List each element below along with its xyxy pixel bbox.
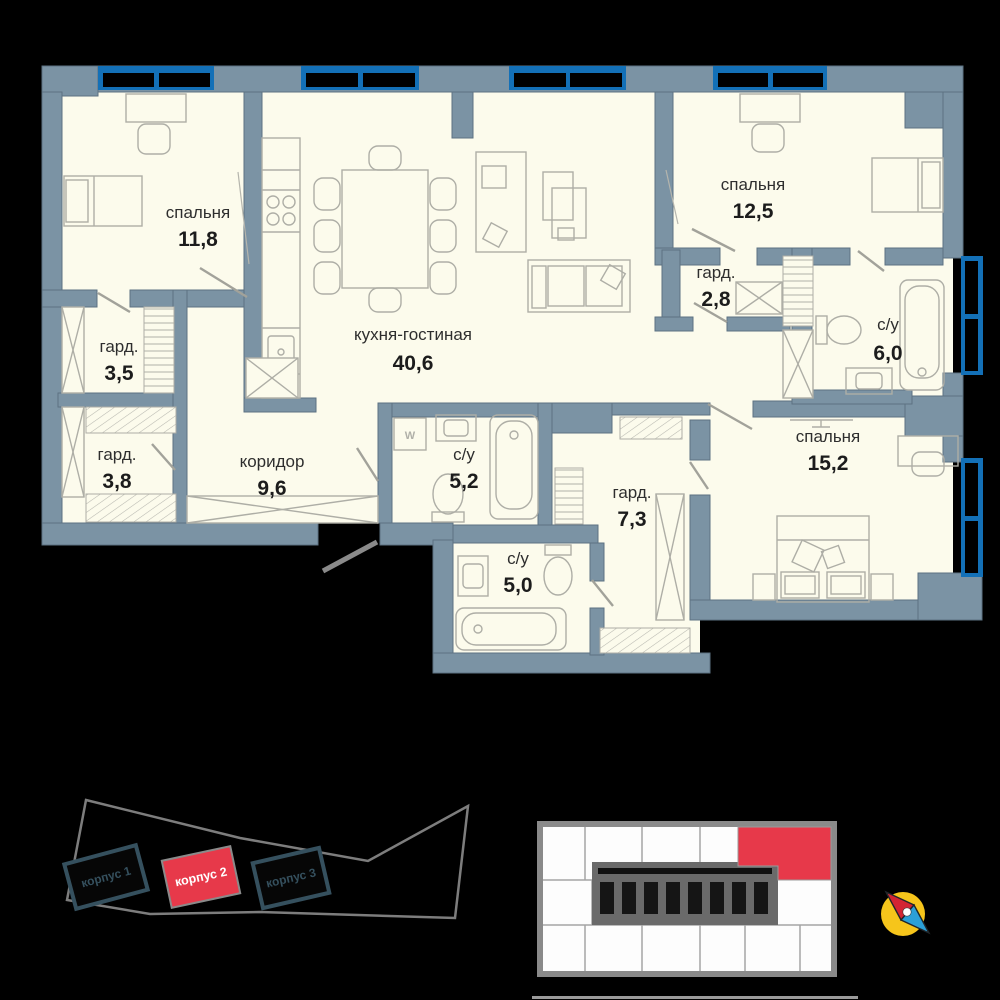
svg-text:5,2: 5,2 <box>449 470 478 493</box>
svg-text:7,3: 7,3 <box>617 508 646 531</box>
svg-text:спальня: спальня <box>721 175 786 194</box>
svg-text:6,0: 6,0 <box>873 342 902 365</box>
closet-rail-3 <box>86 407 176 433</box>
window-right-1 <box>961 256 983 375</box>
svg-text:коридор: коридор <box>240 452 305 471</box>
svg-text:гард.: гард. <box>98 445 137 464</box>
site-plan: корпус 1 корпус 2 корпус 3 <box>64 800 468 918</box>
closet-rail-2 <box>144 307 174 393</box>
svg-text:кухня-гостиная: кухня-гостиная <box>354 325 472 344</box>
svg-text:15,2: 15,2 <box>808 452 849 475</box>
svg-text:гард.: гард. <box>613 483 652 502</box>
svg-text:гард.: гард. <box>100 337 139 356</box>
svg-text:спальня: спальня <box>166 203 231 222</box>
building-korpus-3: корпус 3 <box>253 848 330 908</box>
window-top-3 <box>509 66 626 90</box>
svg-text:3,8: 3,8 <box>102 470 132 493</box>
window-top-4 <box>713 66 827 90</box>
svg-text:2,8: 2,8 <box>701 288 731 311</box>
entrance-door <box>323 542 377 571</box>
svg-text:11,8: 11,8 <box>178 228 218 251</box>
closet-rail-4 <box>86 494 176 522</box>
svg-text:9,6: 9,6 <box>257 477 286 500</box>
minimap-baseline <box>532 996 858 999</box>
svg-text:гард.: гард. <box>697 263 736 282</box>
svg-text:спальня: спальня <box>796 427 861 446</box>
closet-rail-5 <box>620 417 682 439</box>
closet-rail-1 <box>783 256 813 326</box>
svg-text:с/у: с/у <box>877 315 899 334</box>
floor-minimap <box>532 824 858 999</box>
floorplan-page: W <box>0 0 1000 1000</box>
minimap-core <box>592 862 778 925</box>
window-right-2 <box>961 458 983 577</box>
svg-text:5,0: 5,0 <box>503 574 532 597</box>
washer-label: W <box>405 430 416 442</box>
svg-text:3,5: 3,5 <box>104 362 134 385</box>
svg-text:12,5: 12,5 <box>733 200 774 223</box>
svg-text:с/у: с/у <box>453 445 475 464</box>
apartment-plan: W <box>42 66 983 673</box>
svg-text:с/у: с/у <box>507 549 529 568</box>
floorplan-canvas: W <box>0 0 1000 1000</box>
svg-text:40,6: 40,6 <box>393 352 434 375</box>
closet-rail-7 <box>600 628 690 653</box>
window-top-2 <box>301 66 419 90</box>
building-korpus-2: корпус 2 <box>162 846 240 908</box>
compass-icon <box>881 892 929 936</box>
closet-rail-6 <box>555 468 583 524</box>
window-top-1 <box>98 66 214 90</box>
